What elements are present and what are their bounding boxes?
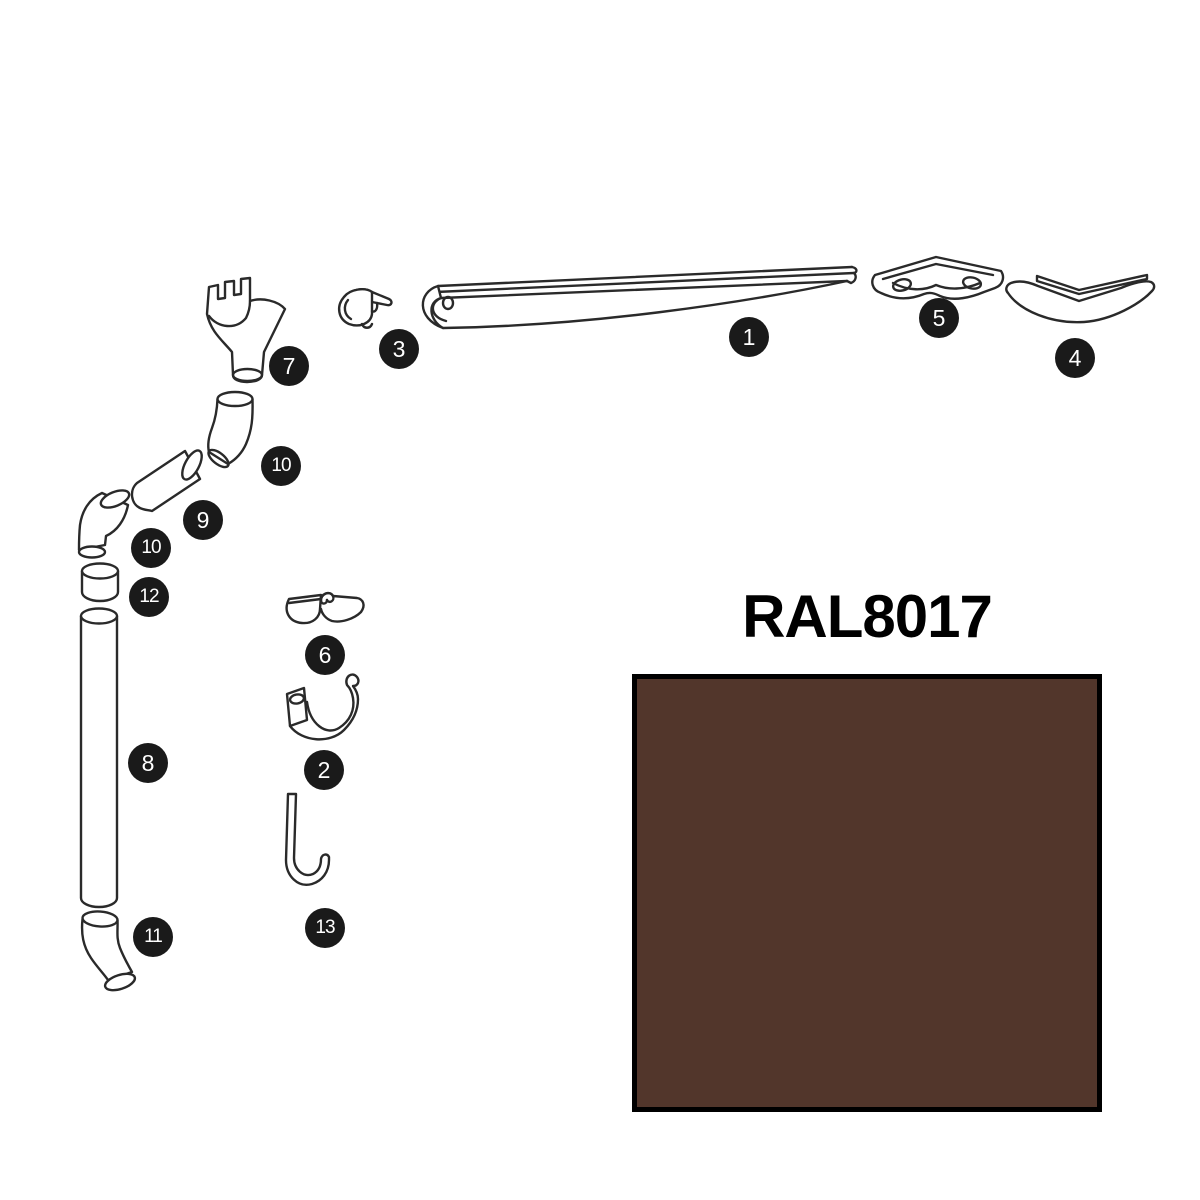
part-badge-4: 4 [1055,338,1095,378]
fascia-bracket-drawing [276,670,372,752]
part-badge-9: 9 [183,500,223,540]
gutter-parts-diagram: 1 2 3 4 5 6 7 8 9 10 10 11 12 13 RAL8017 [0,0,1200,1200]
part-badge-7: 7 [269,346,309,386]
part-badge-1: 1 [729,317,769,357]
part-badge-10-lower: 10 [131,528,171,568]
downpipe-bend-lower-drawing [74,484,136,564]
gutter-corner-external-drawing [1000,266,1158,328]
part-badge-6: 6 [305,635,345,675]
ral8017-colour-swatch [632,674,1102,1112]
part-badge-8: 8 [128,743,168,783]
downpipe-shoe-drawing [74,908,140,998]
rafter-hook-drawing [276,788,340,904]
part-badge-11: 11 [133,917,173,957]
ral-colour-code-label: RAL8017 [632,584,1102,650]
part-badge-2: 2 [304,750,344,790]
gutter-stop-end-drawing [332,282,398,330]
gutter-union-drawing [281,586,371,634]
downpipe-length-drawing [76,606,122,910]
pipe-socket-drawing [77,560,123,604]
part-badge-3: 3 [379,329,419,369]
downpipe-bend-upper-drawing [204,388,264,480]
part-badge-13: 13 [305,908,345,948]
part-badge-12: 12 [129,577,169,617]
gutter-length-drawing [405,260,865,335]
part-badge-5: 5 [919,298,959,338]
part-badge-10-upper: 10 [261,446,301,486]
